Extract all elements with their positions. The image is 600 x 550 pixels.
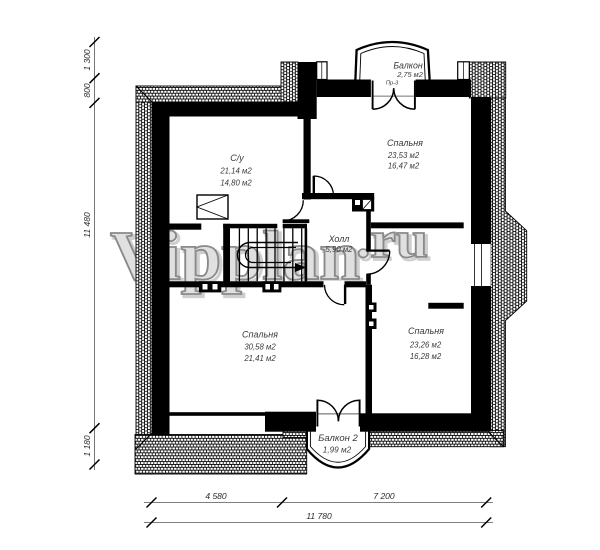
svg-text:30,58 м2: 30,58 м2 bbox=[244, 343, 276, 352]
svg-text:Спальня: Спальня bbox=[408, 326, 444, 336]
svg-text:1 180: 1 180 bbox=[82, 435, 92, 457]
svg-text:16,28 м2: 16,28 м2 bbox=[410, 352, 442, 361]
svg-text:Пр-3: Пр-3 bbox=[386, 81, 399, 87]
svg-text:23,53 м2: 23,53 м2 bbox=[387, 151, 420, 160]
svg-text:11 780: 11 780 bbox=[306, 511, 332, 521]
svg-text:4 580: 4 580 bbox=[205, 491, 227, 501]
svg-text:16,47 м2: 16,47 м2 bbox=[388, 162, 420, 171]
svg-text:2,75 м2: 2,75 м2 bbox=[396, 70, 423, 79]
svg-text:11 480: 11 480 bbox=[82, 212, 92, 238]
svg-text:21,14 м2: 21,14 м2 bbox=[219, 167, 252, 176]
svg-text:Спальня: Спальня bbox=[387, 138, 423, 148]
svg-text:21,41 м2: 21,41 м2 bbox=[243, 354, 276, 363]
svg-text:1,99 м2: 1,99 м2 bbox=[323, 446, 352, 455]
svg-text:23,26 м2: 23,26 м2 bbox=[409, 341, 442, 350]
svg-text:Спальня: Спальня bbox=[242, 330, 278, 340]
svg-text:Балкон: Балкон bbox=[393, 61, 423, 71]
svg-text:800: 800 bbox=[82, 83, 92, 97]
svg-text:Балкон 2: Балкон 2 bbox=[318, 433, 358, 444]
svg-text:14,80 м2: 14,80 м2 bbox=[220, 179, 252, 188]
svg-text:Холл: Холл bbox=[328, 234, 350, 244]
svg-text:7 200: 7 200 bbox=[373, 491, 395, 501]
svg-text:5,90 м2: 5,90 м2 bbox=[325, 245, 353, 254]
svg-text:С/у: С/у bbox=[230, 153, 244, 163]
svg-text:1 300: 1 300 bbox=[82, 49, 92, 71]
